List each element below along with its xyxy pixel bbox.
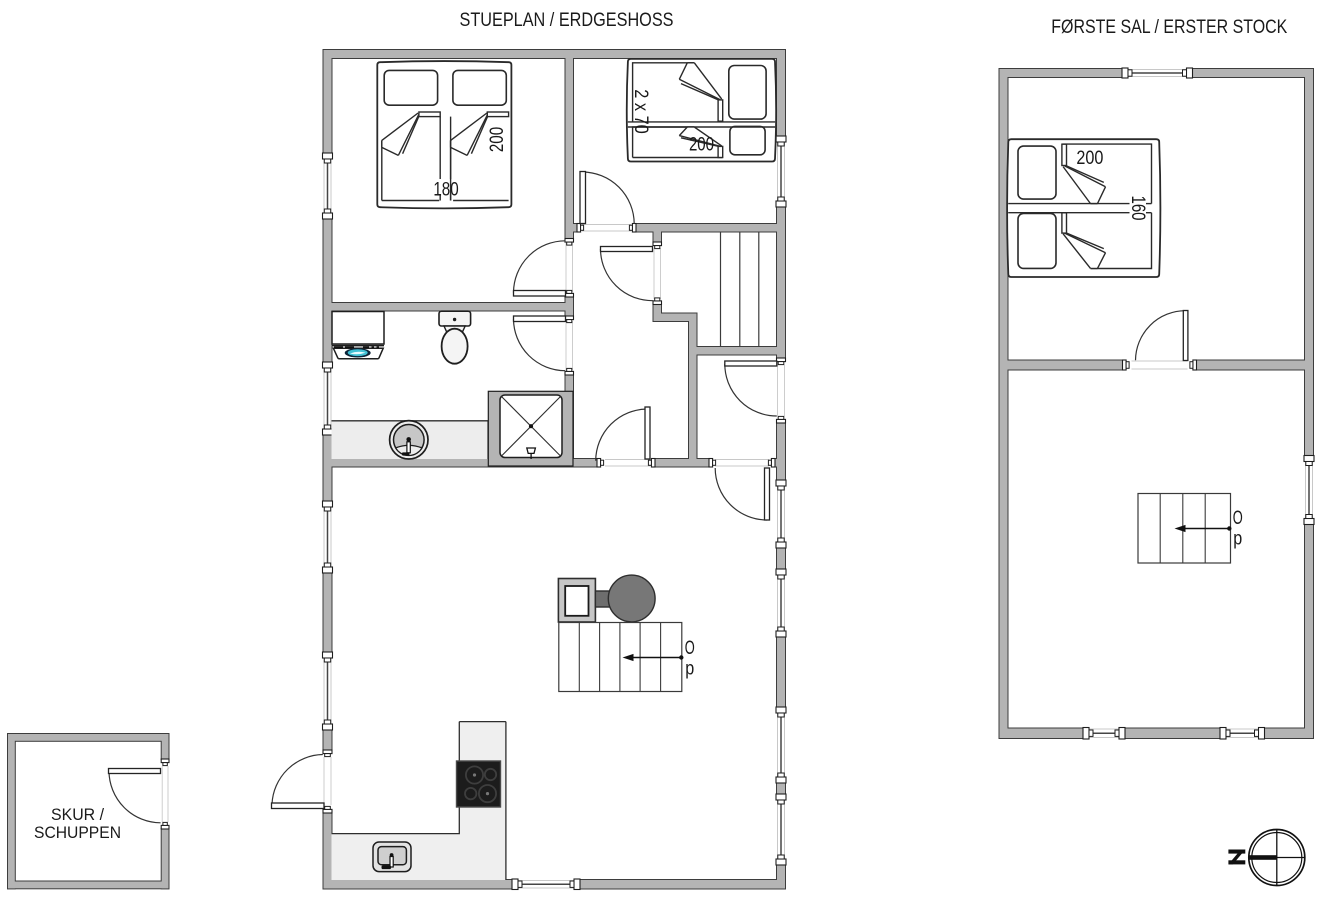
svg-text:200: 200 <box>1076 148 1103 169</box>
svg-text:SCHUPPEN: SCHUPPEN <box>34 824 121 842</box>
svg-text:200: 200 <box>487 127 508 152</box>
svg-text:180: 180 <box>433 179 458 200</box>
svg-text:FØRSTE SAL / ERSTER STOCK: FØRSTE SAL / ERSTER STOCK <box>1051 17 1287 38</box>
svg-text:p: p <box>1233 529 1242 550</box>
svg-text:O: O <box>1233 508 1243 529</box>
svg-text:O: O <box>685 638 695 659</box>
svg-text:200: 200 <box>689 134 714 155</box>
svg-text:STUEPLAN / ERDGESHOSS: STUEPLAN / ERDGESHOSS <box>460 10 674 31</box>
svg-text:2 x 70: 2 x 70 <box>630 89 651 134</box>
svg-text:p: p <box>685 658 694 679</box>
svg-text:160: 160 <box>1127 195 1148 220</box>
svg-text:SKUR /: SKUR / <box>51 806 104 824</box>
